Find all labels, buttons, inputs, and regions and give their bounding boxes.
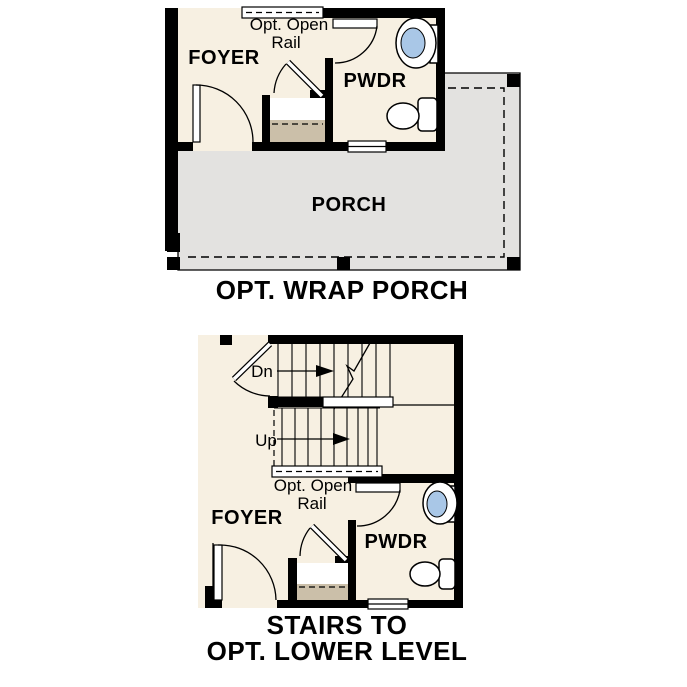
foyer-label: FOYER	[211, 507, 282, 529]
foyer-label: FOYER	[188, 47, 259, 69]
window	[348, 141, 386, 152]
porch-post	[507, 257, 520, 270]
down-label: Dn	[251, 362, 273, 381]
porch-label: PORCH	[312, 194, 387, 216]
toilet	[410, 559, 455, 589]
stairs-caption-line2: OPT. LOWER LEVEL	[207, 636, 468, 666]
open-rail-label-line1: Opt. Open	[274, 476, 352, 495]
open-rail-label-line1: Opt. Open	[250, 15, 328, 34]
open-rail-label-line2: Rail	[271, 33, 300, 52]
floorplan-canvas: FOYER PWDR PORCH Opt. Open Rail OPT. WRA…	[0, 0, 687, 687]
closet	[270, 98, 325, 142]
closet-interior	[270, 98, 325, 122]
closet-interior	[297, 563, 348, 586]
sink	[396, 18, 438, 68]
wrap-porch-plan: FOYER PWDR PORCH Opt. Open Rail OPT. WRA…	[165, 7, 520, 305]
sink	[423, 482, 457, 524]
open-rail-label-line2: Rail	[297, 494, 326, 513]
porch-post	[507, 74, 520, 87]
up-label: Up	[255, 431, 277, 450]
pwdr-label: PWDR	[364, 531, 427, 553]
sink-basin	[427, 491, 447, 517]
porch-post	[167, 257, 180, 270]
pwdr-label: PWDR	[343, 70, 406, 92]
floorplan-page: FOYER PWDR PORCH Opt. Open Rail OPT. WRA…	[0, 0, 687, 687]
sink-basin	[401, 28, 425, 58]
closet-floor	[270, 120, 325, 142]
closet	[297, 563, 348, 600]
stairs-lower-level-plan: Dn Up Opt. Open Rail FOYER PWDR STAIRS T…	[198, 335, 467, 666]
window	[368, 599, 408, 609]
wrap-porch-caption: OPT. WRAP PORCH	[216, 275, 469, 305]
porch-post	[337, 257, 350, 270]
